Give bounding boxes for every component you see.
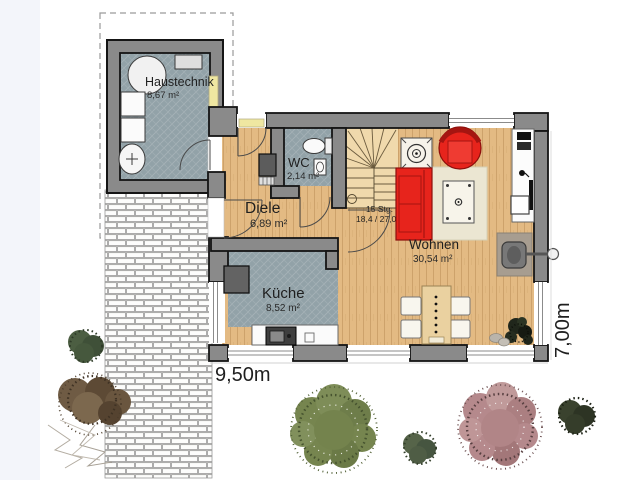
room-label: Haustechnik [145, 75, 215, 89]
appliance-icon [517, 132, 531, 140]
stair-steps-label: 15 Stg. [366, 204, 393, 214]
radiator-icon [259, 177, 274, 185]
dining-table [422, 286, 451, 344]
stair-dims-label: 18,4 / 27,0 [356, 214, 396, 224]
fridge-icon [224, 266, 249, 293]
left-margin-strip [0, 0, 40, 480]
dining-chair [401, 320, 421, 338]
room-area: 8,52 m² [266, 303, 301, 314]
dining-chair [450, 320, 470, 338]
haustechnik-room: Haustechnik 8,67 m² [107, 40, 224, 193]
kitchen-counter [252, 325, 338, 345]
room-label: Wohnen [409, 237, 459, 252]
armchair [439, 127, 481, 169]
floorplan-canvas: Haustechnik 8,67 m² 15 Stg. 18,4 / 27,0 [0, 0, 640, 480]
room-label: Diele [245, 200, 280, 217]
appliance-icon [121, 118, 145, 142]
dimension-depth-label: 7,00m [552, 302, 574, 358]
coffee-table [443, 181, 474, 223]
wood-stove-icon [401, 138, 432, 169]
chimney-icon [548, 249, 559, 260]
appliance-icon [121, 92, 145, 116]
dining-chair [450, 297, 470, 315]
desk [511, 129, 534, 222]
toilet-icon [303, 138, 332, 154]
room-area: 6,89 m² [250, 218, 288, 230]
room-label: Küche [262, 285, 305, 302]
chair [511, 196, 529, 214]
brick-path [105, 190, 212, 478]
room-area: 30,54 m² [413, 254, 453, 265]
dimension-width-label: 9,50m [215, 364, 271, 386]
dining-chair [401, 297, 421, 315]
room-label: WC [288, 155, 310, 170]
room-area: 8,67 m² [147, 90, 179, 101]
lamp-icon [519, 170, 525, 176]
floorplan-drawing: Haustechnik 8,67 m² 15 Stg. 18,4 / 27,0 [0, 0, 640, 480]
basin-icon [119, 144, 145, 174]
shaft [259, 154, 276, 176]
sofa [396, 168, 432, 240]
room-area: 2,14 m² [287, 171, 319, 182]
appliance-icon [517, 142, 531, 150]
cabinet-icon [175, 55, 202, 69]
